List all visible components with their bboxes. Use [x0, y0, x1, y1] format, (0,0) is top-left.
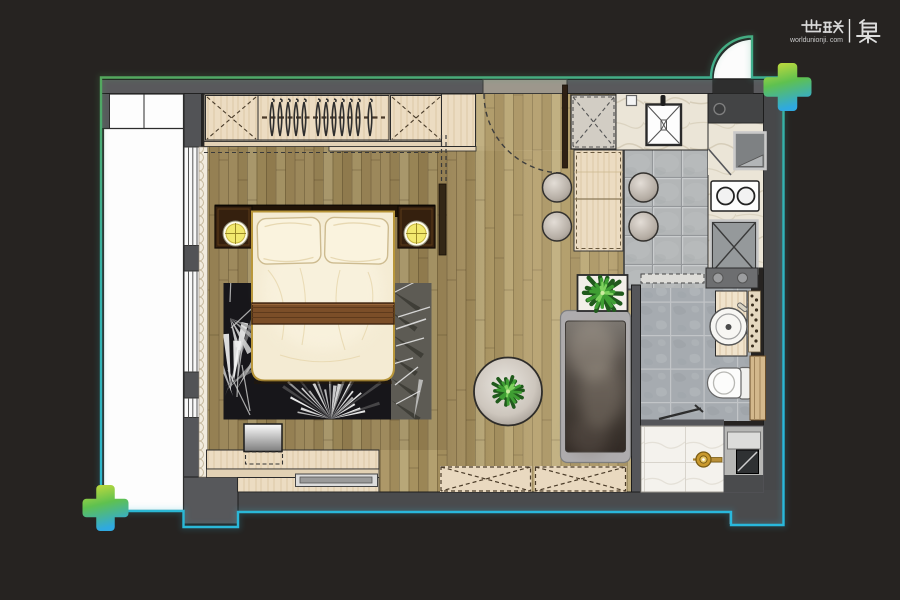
svg-text:worldunionji. com: worldunionji. com [789, 37, 843, 44]
